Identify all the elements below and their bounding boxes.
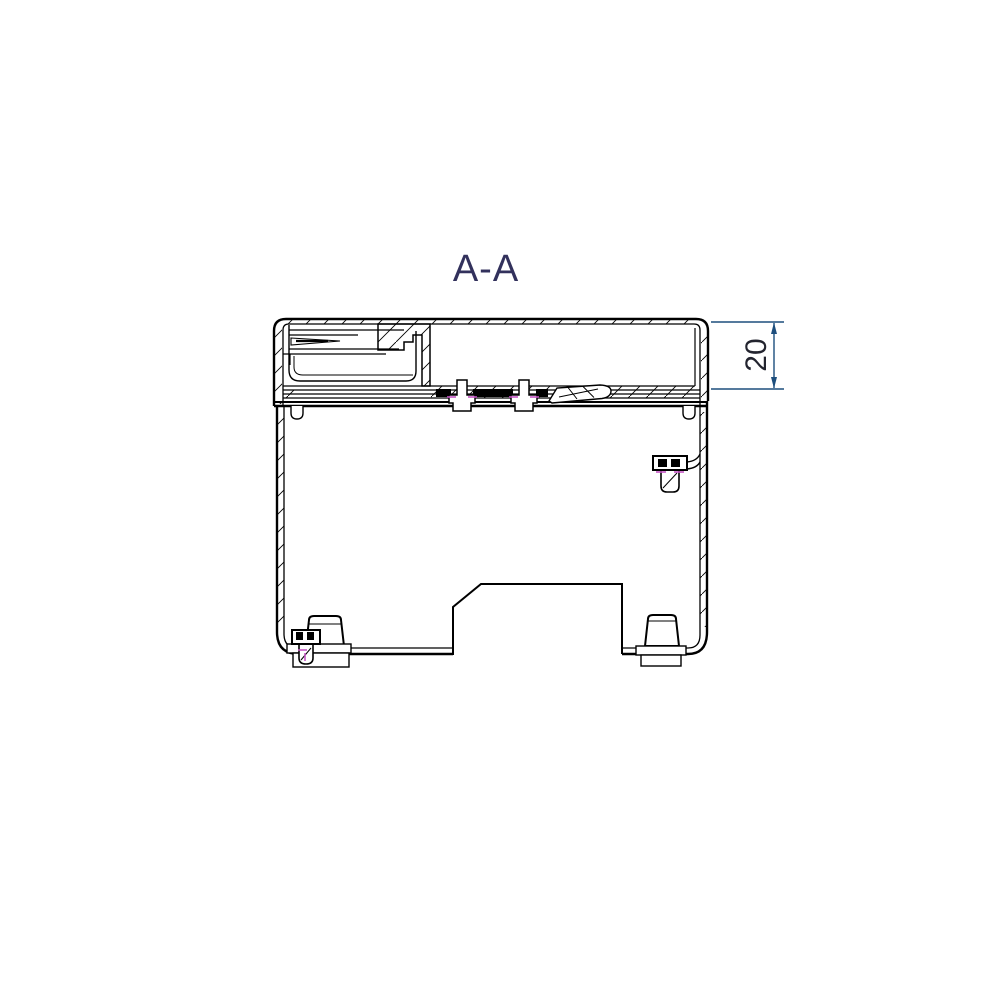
centerline-marks (298, 397, 684, 661)
left-foot-assembly (287, 616, 351, 667)
bottom-recess (453, 584, 622, 655)
right-boss (645, 615, 679, 646)
lid-internal-wall (378, 324, 430, 386)
lid-left-wall-hatch (275, 321, 282, 404)
body-right-inner-wall (688, 399, 700, 648)
lid-section (274, 319, 708, 411)
dimension-annotation: 20 (711, 322, 784, 389)
lid-top-wall-hatch (287, 320, 693, 324)
side-screw (653, 454, 700, 492)
section-drawing: 20 (0, 0, 1000, 1000)
lid-pin-left (449, 380, 475, 411)
rim-hook-right (683, 406, 695, 419)
body-section (277, 399, 707, 655)
right-foot-pad (641, 655, 681, 666)
arrow-up-icon (771, 323, 777, 335)
dimension-value: 20 (740, 338, 773, 371)
lid-pin-right (511, 380, 537, 411)
rim-hook-left (291, 406, 303, 419)
latch-lever (549, 385, 611, 403)
lid-flange-strip (274, 386, 708, 406)
cad-section-view: A-A (0, 0, 1000, 1000)
body-left-inner-wall (284, 406, 298, 648)
lid-right-wall-hatch (701, 326, 707, 398)
arrow-down-icon (771, 377, 777, 389)
right-foot-assembly (636, 615, 686, 666)
